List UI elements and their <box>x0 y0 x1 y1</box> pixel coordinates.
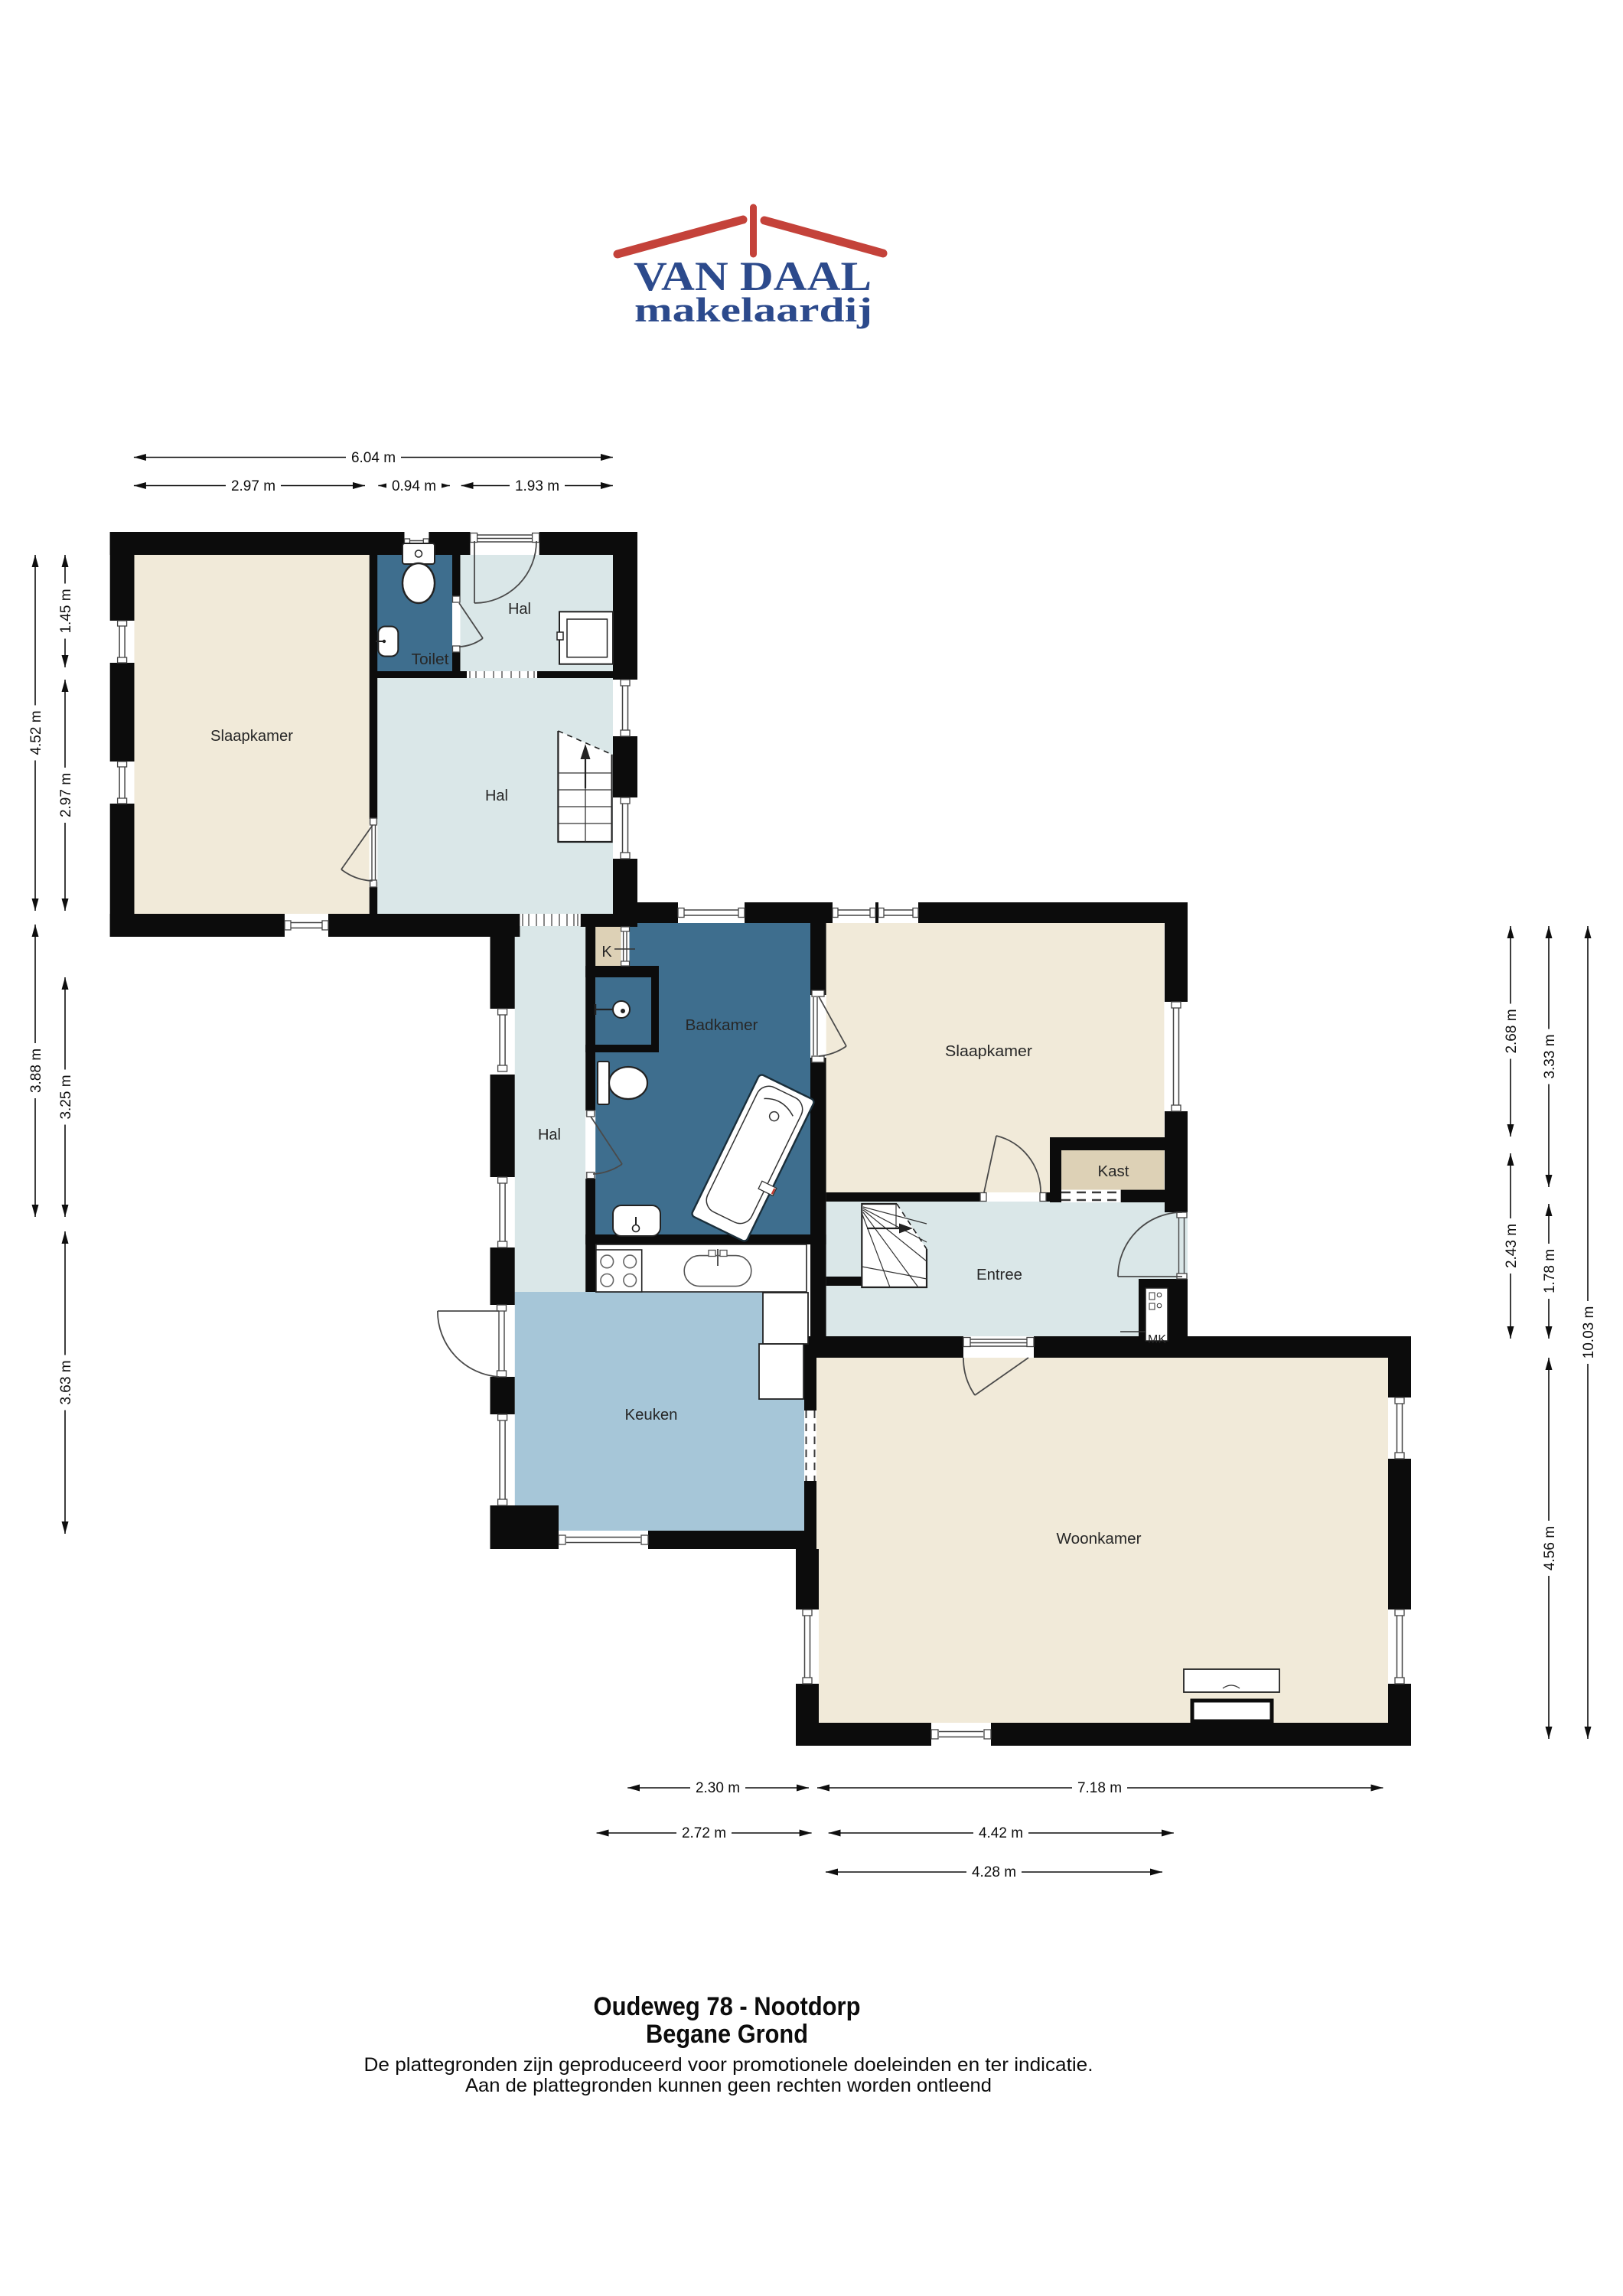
svg-text:2.30 m: 2.30 m <box>696 1780 740 1796</box>
svg-text:7.18 m: 7.18 m <box>1077 1780 1122 1796</box>
svg-text:4.52 m: 4.52 m <box>28 710 44 755</box>
svg-text:3.25 m: 3.25 m <box>58 1075 74 1119</box>
svg-text:Slaapkamer: Slaapkamer <box>210 728 293 745</box>
svg-text:3.63 m: 3.63 m <box>58 1360 74 1404</box>
svg-text:Slaapkamer: Slaapkamer <box>945 1043 1032 1060</box>
svg-text:Hal: Hal <box>508 601 531 618</box>
svg-text:4.56 m: 4.56 m <box>1542 1526 1558 1570</box>
svg-text:2.72 m: 2.72 m <box>682 1825 726 1841</box>
svg-text:4.42 m: 4.42 m <box>979 1825 1023 1841</box>
svg-text:Oudeweg 78 - Nootdorp: Oudeweg 78 - Nootdorp <box>594 1992 861 2021</box>
svg-text:Woonkamer: Woonkamer <box>1057 1531 1142 1548</box>
svg-text:10.03 m: 10.03 m <box>1581 1306 1597 1359</box>
svg-text:Kast: Kast <box>1098 1163 1129 1180</box>
svg-text:4.28 m: 4.28 m <box>972 1864 1016 1880</box>
svg-text:1.45 m: 1.45 m <box>58 589 74 633</box>
svg-text:Entree: Entree <box>976 1267 1022 1283</box>
svg-text:Hal: Hal <box>485 788 508 804</box>
svg-text:makelaardij: makelaardij <box>634 290 872 329</box>
svg-text:3.33 m: 3.33 m <box>1542 1034 1558 1078</box>
svg-text:Hal: Hal <box>538 1127 561 1143</box>
svg-text:2.97 m: 2.97 m <box>58 773 74 817</box>
svg-text:Keuken: Keuken <box>625 1407 678 1424</box>
svg-text:2.97 m: 2.97 m <box>231 478 275 494</box>
svg-text:Toilet: Toilet <box>412 651 449 668</box>
svg-text:2.68 m: 2.68 m <box>1504 1009 1520 1053</box>
svg-text:K: K <box>601 944 612 960</box>
svg-text:1.78 m: 1.78 m <box>1542 1249 1558 1293</box>
svg-text:0.94 m: 0.94 m <box>392 478 436 494</box>
svg-text:Badkamer: Badkamer <box>686 1017 758 1034</box>
svg-text:Aan de plattegronden kunnen ge: Aan de plattegronden kunnen geen rechten… <box>465 2075 992 2096</box>
svg-text:6.04 m: 6.04 m <box>351 450 396 466</box>
svg-text:3.88 m: 3.88 m <box>28 1049 44 1093</box>
svg-text:MK: MK <box>1148 1333 1166 1346</box>
svg-text:2.43 m: 2.43 m <box>1504 1224 1520 1268</box>
svg-text:Begane Grond: Begane Grond <box>646 2020 808 2049</box>
svg-text:1.93 m: 1.93 m <box>515 478 559 494</box>
svg-text:De plattegronden zijn geproduc: De plattegronden zijn geproduceerd voor … <box>364 2054 1093 2076</box>
